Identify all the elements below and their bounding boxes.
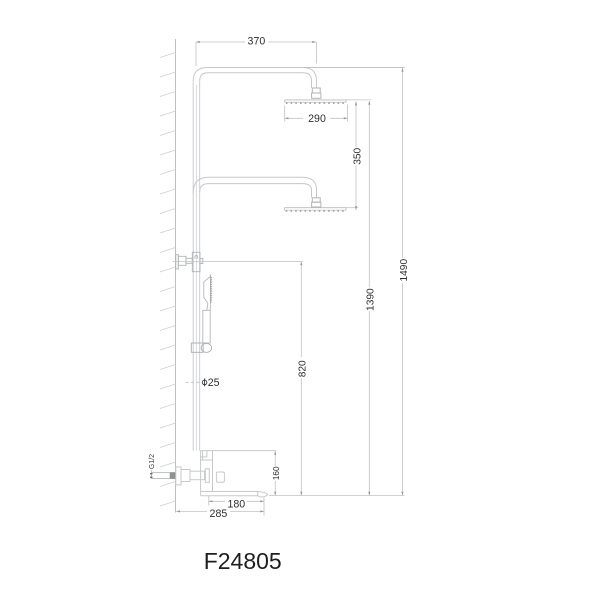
svg-text:160: 160 [272, 466, 281, 480]
svg-text:G1/2: G1/2 [149, 454, 156, 469]
svg-text:F24805: F24805 [204, 548, 282, 574]
svg-text:180: 180 [227, 499, 245, 511]
svg-text:820: 820 [298, 360, 309, 377]
svg-text:350: 350 [352, 147, 363, 164]
svg-text:285: 285 [210, 508, 228, 520]
svg-text:370: 370 [248, 36, 266, 48]
svg-text:1490: 1490 [399, 259, 410, 282]
svg-text:1390: 1390 [366, 288, 377, 311]
svg-text:25: 25 [208, 377, 220, 389]
svg-text:290: 290 [308, 113, 326, 125]
